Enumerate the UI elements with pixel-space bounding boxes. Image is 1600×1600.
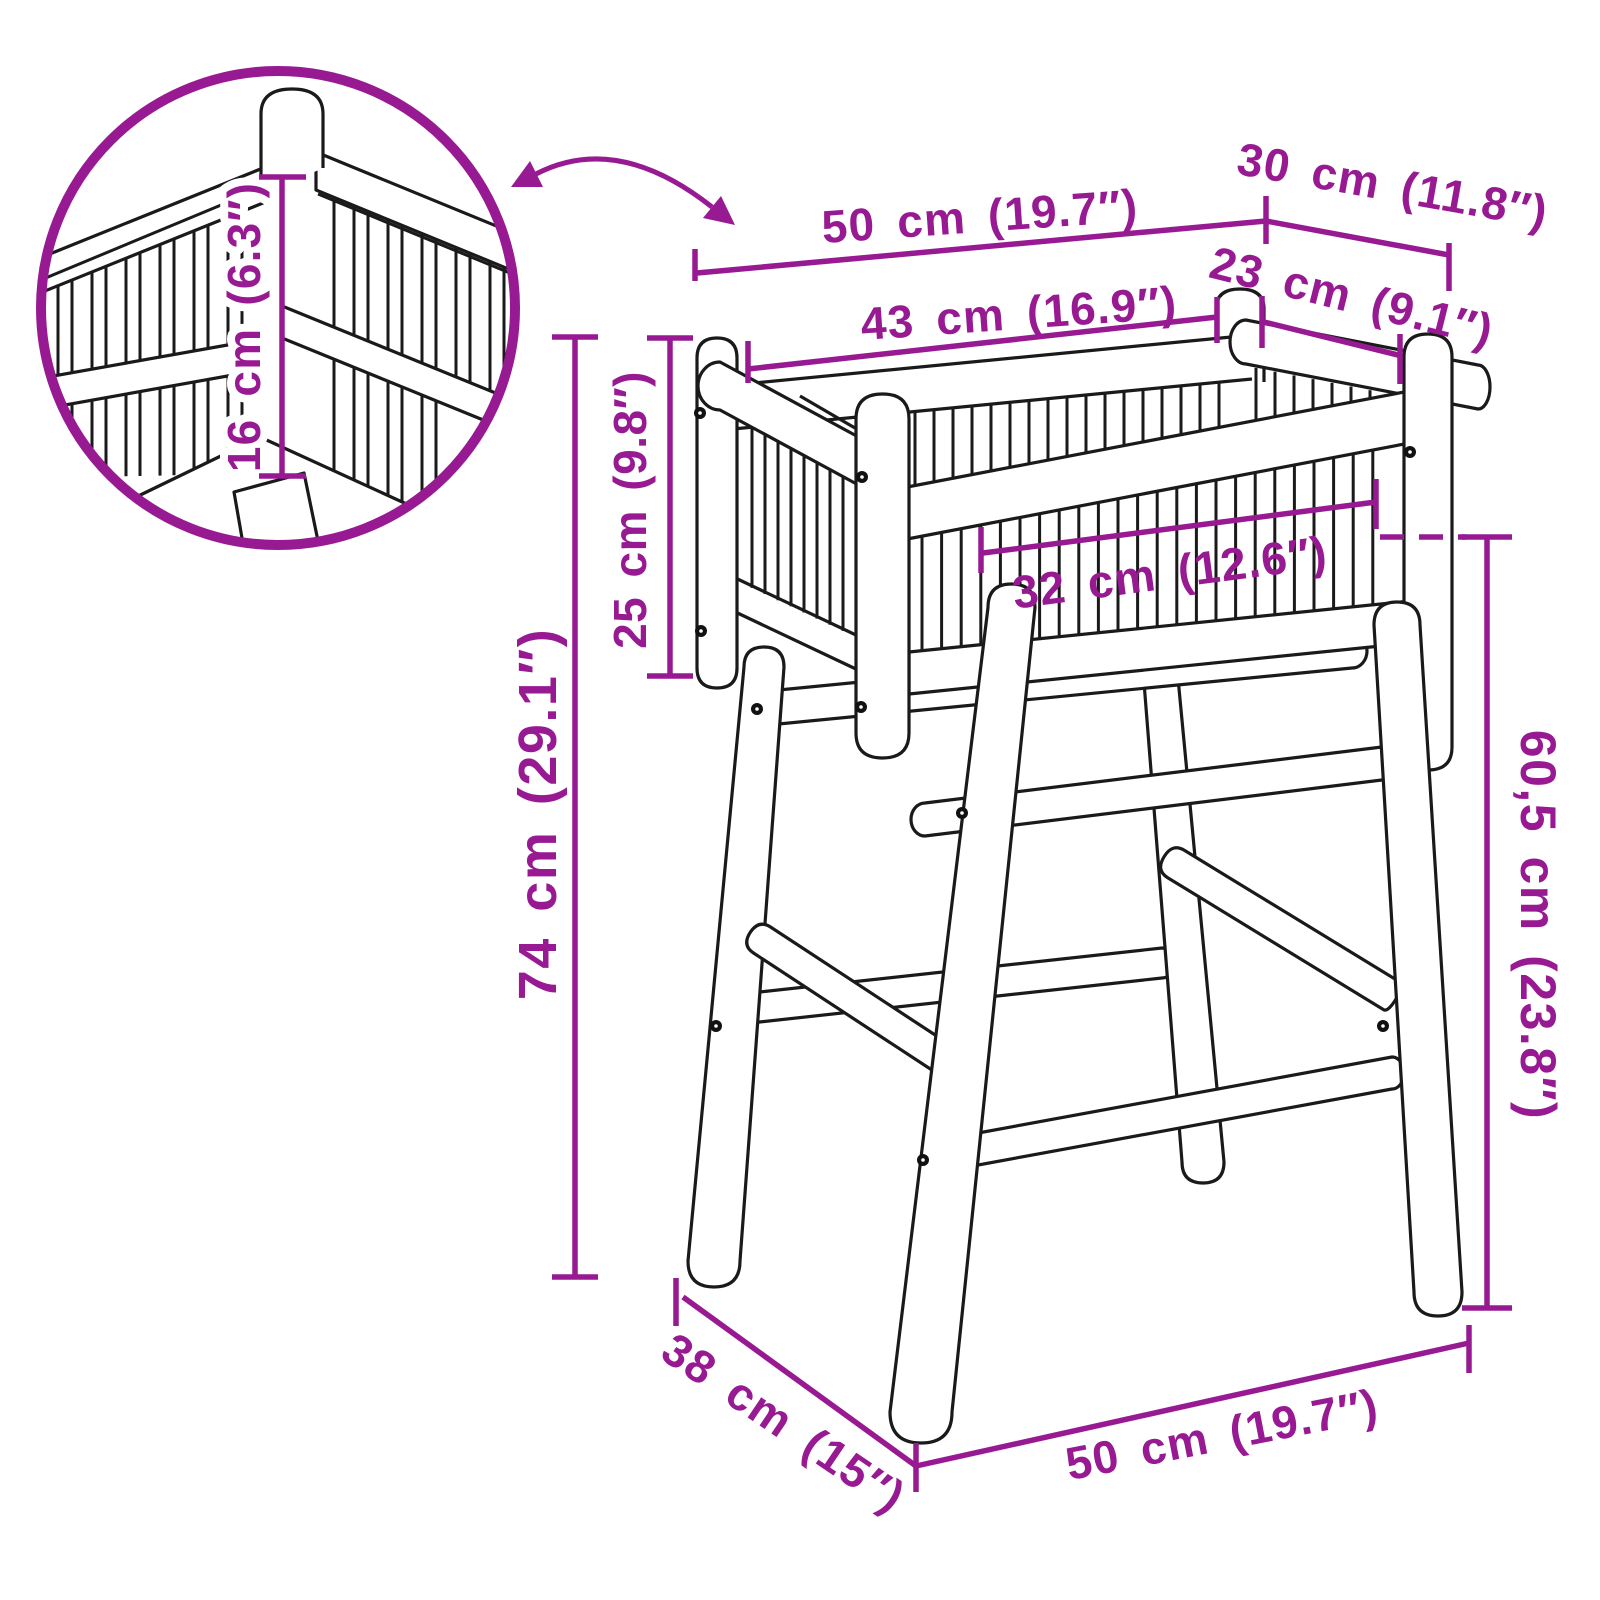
svg-text:60,5 cm (23.8″): 60,5 cm (23.8″) (1510, 730, 1566, 1120)
svg-text:16 cm (6.3″): 16 cm (6.3″) (218, 182, 270, 472)
svg-text:74 cm (29.1″): 74 cm (29.1″) (508, 628, 568, 1001)
svg-text:25 cm (9.8″): 25 cm (9.8″) (604, 371, 656, 649)
